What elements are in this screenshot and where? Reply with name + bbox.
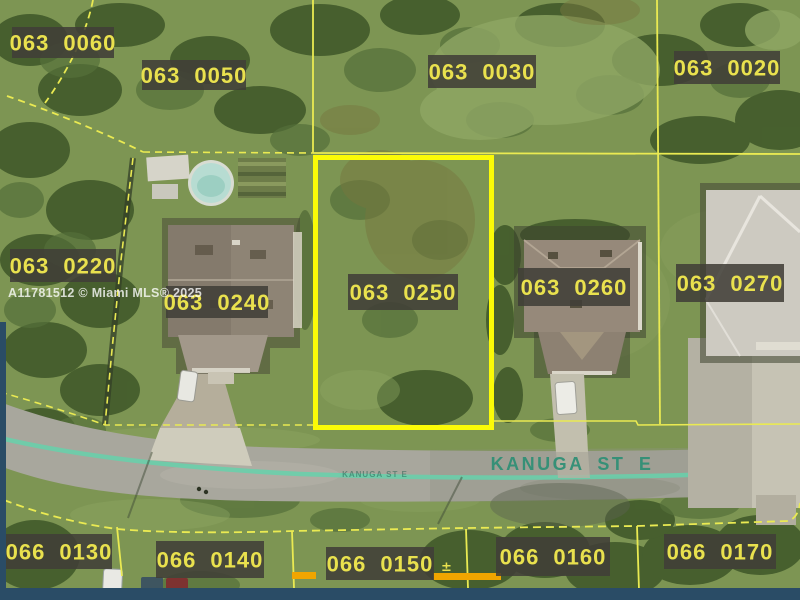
parcel-label-063-0250: 063 0250 xyxy=(348,274,458,310)
aerial-map-canvas: ± KANUGA ST E KANUGA ST E 063 0060 063 0… xyxy=(0,0,800,600)
pool xyxy=(188,160,234,206)
svg-text:066 0140: 066 0140 xyxy=(157,548,264,573)
pedestrian xyxy=(204,490,208,494)
parcel-label-063-0020: 063 0020 xyxy=(674,51,781,84)
street-name-label-small: KANUGA ST E xyxy=(342,470,408,479)
svg-text:063 0060: 063 0060 xyxy=(10,31,117,56)
parcel-label-066-0170: 066 0170 xyxy=(664,534,776,569)
parcel-label-066-0150: 066 0150 xyxy=(326,547,434,580)
parcel-label-063-0260: 063 0260 xyxy=(518,268,630,306)
parcel-label-063-0270: 063 0270 xyxy=(676,264,784,302)
photo-edge-bar-bottom xyxy=(0,588,800,600)
parcel-label-063-0050: 063 0050 xyxy=(141,60,248,90)
parcel-label-066-0140: 066 0140 xyxy=(156,541,264,578)
survey-marker xyxy=(292,572,316,579)
driveway-apron xyxy=(148,428,252,466)
pedestrian xyxy=(197,487,201,491)
svg-text:066 0160: 066 0160 xyxy=(500,545,607,570)
garden-beds xyxy=(238,158,286,198)
svg-text:063 0030: 063 0030 xyxy=(429,60,536,85)
svg-text:063 0270: 063 0270 xyxy=(677,271,784,296)
shed xyxy=(146,155,190,182)
svg-text:066 0150: 066 0150 xyxy=(327,552,434,577)
boundary-line-dashed xyxy=(143,152,313,153)
parcel-label-066-0160: 066 0160 xyxy=(496,537,610,576)
svg-text:063 0220: 063 0220 xyxy=(10,254,117,279)
svg-text:066 0170: 066 0170 xyxy=(667,540,774,565)
svg-text:063 0250: 063 0250 xyxy=(350,280,457,305)
aerial-photo: ± KANUGA ST E KANUGA ST E 063 0060 063 0… xyxy=(0,0,800,600)
car-white xyxy=(177,370,198,402)
svg-text:066 0130: 066 0130 xyxy=(6,540,113,565)
parcel-label-066-0130: 066 0130 xyxy=(6,534,113,569)
svg-text:063 0260: 063 0260 xyxy=(521,275,628,300)
parcel-label-063-0060: 063 0060 xyxy=(10,27,117,58)
svg-text:063 0020: 063 0020 xyxy=(674,56,781,81)
parcel-label-063-0030: 063 0030 xyxy=(428,55,536,88)
parcel-label-063-0220: 063 0220 xyxy=(10,249,117,282)
photo-edge-strip-left xyxy=(0,322,6,600)
survey-marker-glyph: ± xyxy=(441,560,452,575)
street-name-label: KANUGA ST E xyxy=(491,454,654,474)
patio xyxy=(152,184,178,199)
boundary-line xyxy=(313,153,800,154)
parcel-063-0270-improvements xyxy=(688,183,800,525)
mls-watermark: A11781512 © Miami MLS® 2025 xyxy=(8,286,202,300)
lanai xyxy=(293,232,302,328)
car-white xyxy=(555,381,577,414)
svg-text:063 0050: 063 0050 xyxy=(141,63,248,88)
